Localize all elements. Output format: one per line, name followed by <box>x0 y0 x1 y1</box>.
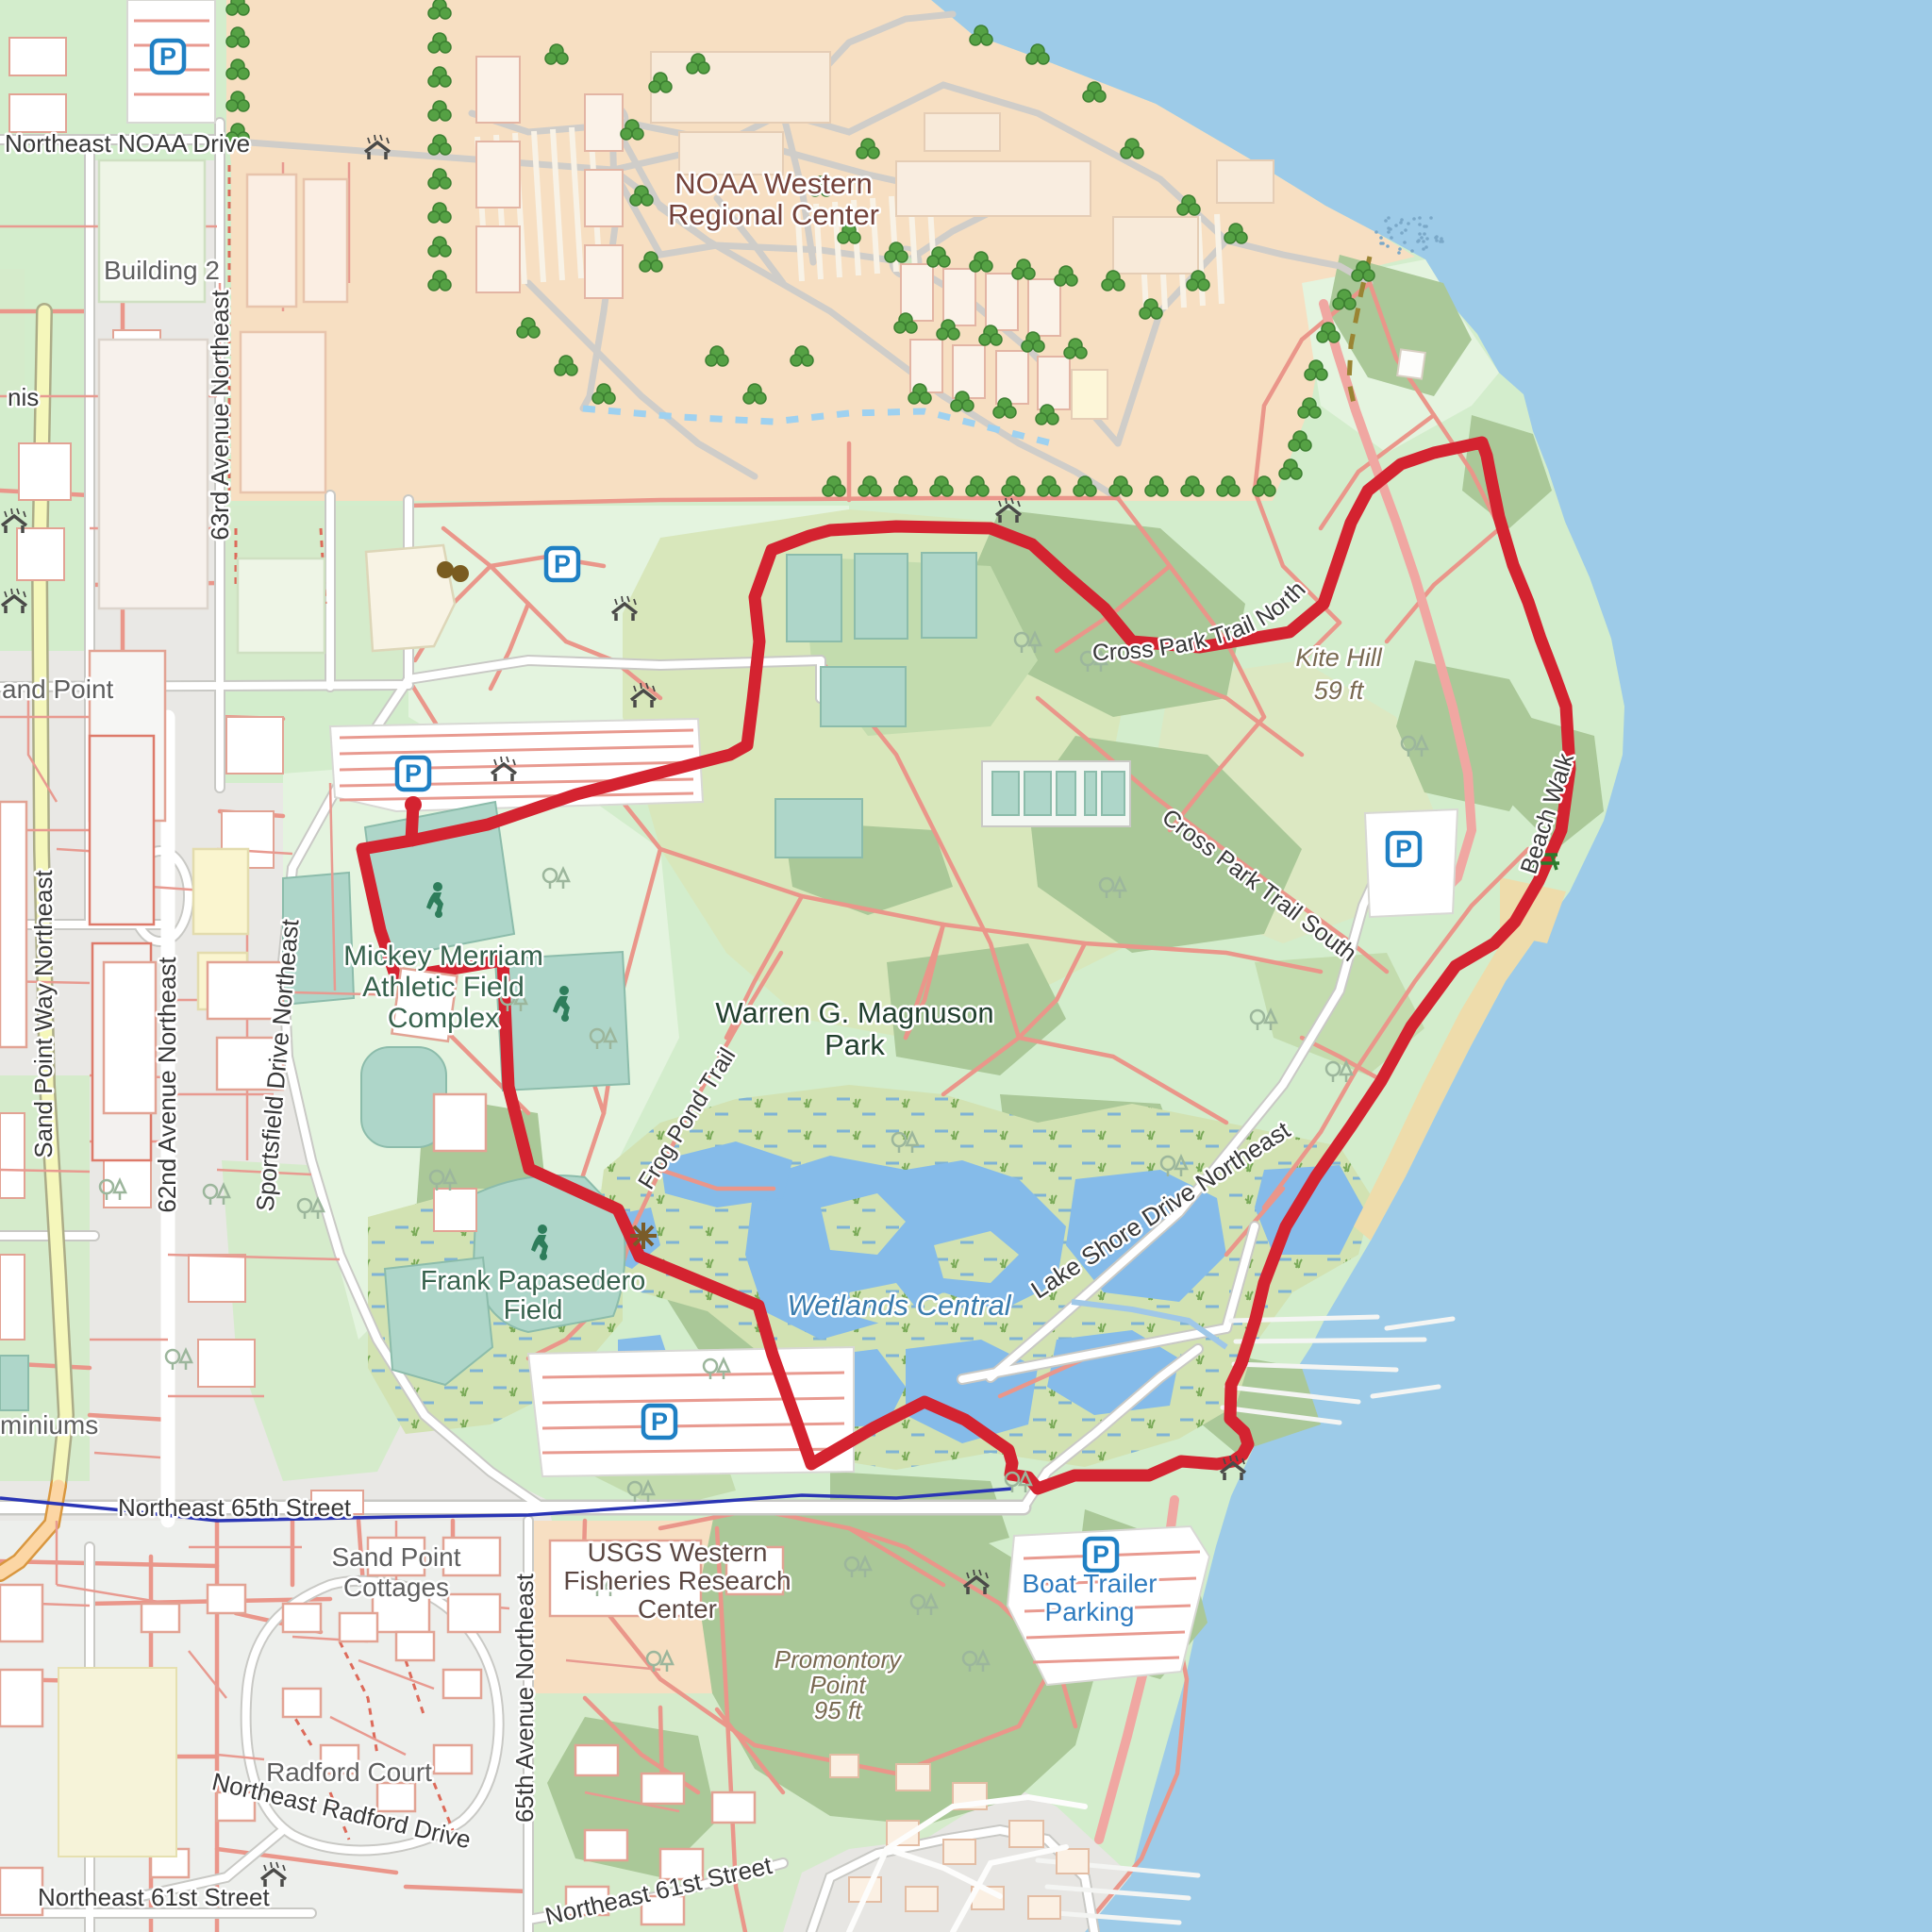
svg-text:62nd Avenue Northeast: 62nd Avenue Northeast <box>153 957 181 1213</box>
svg-text:Sand Point Way Northeast: Sand Point Way Northeast <box>29 870 58 1158</box>
svg-text:Warren G. Magnuson: Warren G. Magnuson <box>715 996 993 1029</box>
svg-text:65th Avenue Northeast: 65th Avenue Northeast <box>510 1573 539 1823</box>
svg-text:and Point: and Point <box>2 675 114 704</box>
svg-text:Frank Papasedero: Frank Papasedero <box>421 1266 646 1296</box>
svg-text:Sand Point: Sand Point <box>332 1542 461 1572</box>
svg-text:Complex: Complex <box>388 1003 499 1034</box>
svg-text:nis: nis <box>8 383 39 411</box>
svg-text:Promontory: Promontory <box>774 1645 903 1674</box>
svg-text:Parking: Parking <box>1045 1597 1135 1626</box>
svg-text:USGS Western: USGS Western <box>588 1538 768 1567</box>
svg-text:Boat Trailer: Boat Trailer <box>1022 1569 1157 1598</box>
svg-text:NOAA Western: NOAA Western <box>675 167 873 200</box>
svg-text:Fisheries Research: Fisheries Research <box>563 1566 791 1595</box>
svg-text:Northeast NOAA Drive: Northeast NOAA Drive <box>5 129 250 158</box>
svg-text:Athletic Field: Athletic Field <box>362 972 525 1003</box>
svg-text:miniums: miniums <box>0 1410 98 1440</box>
svg-text:Wetlands Central: Wetlands Central <box>787 1289 1011 1322</box>
svg-text:95 ft: 95 ft <box>814 1696 863 1724</box>
svg-text:Park: Park <box>824 1028 885 1061</box>
svg-text:Regional Center: Regional Center <box>668 198 879 231</box>
svg-text:Center: Center <box>638 1594 717 1624</box>
svg-text:Cottages: Cottages <box>343 1573 449 1602</box>
svg-text:Kite Hill: Kite Hill <box>1295 643 1383 672</box>
svg-text:Northeast 61st Street: Northeast 61st Street <box>38 1883 270 1911</box>
svg-text:59 ft: 59 ft <box>1314 676 1365 705</box>
svg-text:Point: Point <box>809 1671 867 1699</box>
svg-text:Mickey Merriam: Mickey Merriam <box>343 941 543 972</box>
svg-text:Field: Field <box>504 1295 563 1325</box>
svg-text:Northeast 65th Street: Northeast 65th Street <box>118 1493 352 1522</box>
svg-text:Building 2: Building 2 <box>104 256 220 285</box>
svg-text:Radford Court: Radford Court <box>266 1757 432 1787</box>
svg-text:63rd Avenue Northeast: 63rd Avenue Northeast <box>206 289 234 540</box>
